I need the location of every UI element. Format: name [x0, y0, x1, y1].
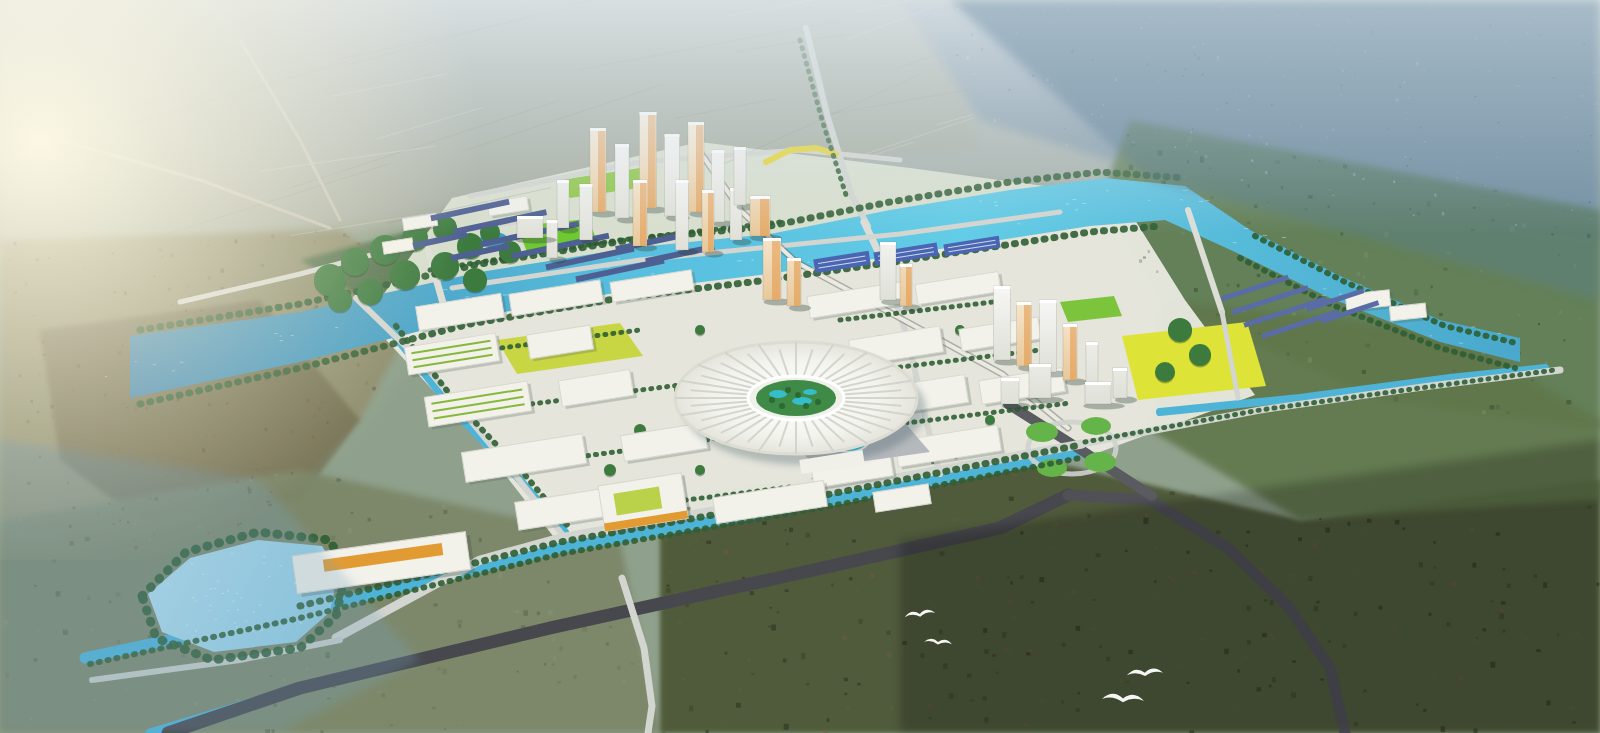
interchange-loop	[1026, 422, 1058, 442]
tree-cluster	[985, 415, 995, 425]
interchange-loop	[1084, 452, 1116, 472]
tree-cluster	[1189, 344, 1211, 366]
aerial-render-canvas	[0, 0, 1600, 733]
tree-cluster	[1155, 362, 1175, 382]
interchange-loop	[1081, 417, 1111, 435]
masterplan-aerial-image	[0, 0, 1600, 733]
tree-cluster	[1168, 318, 1192, 342]
